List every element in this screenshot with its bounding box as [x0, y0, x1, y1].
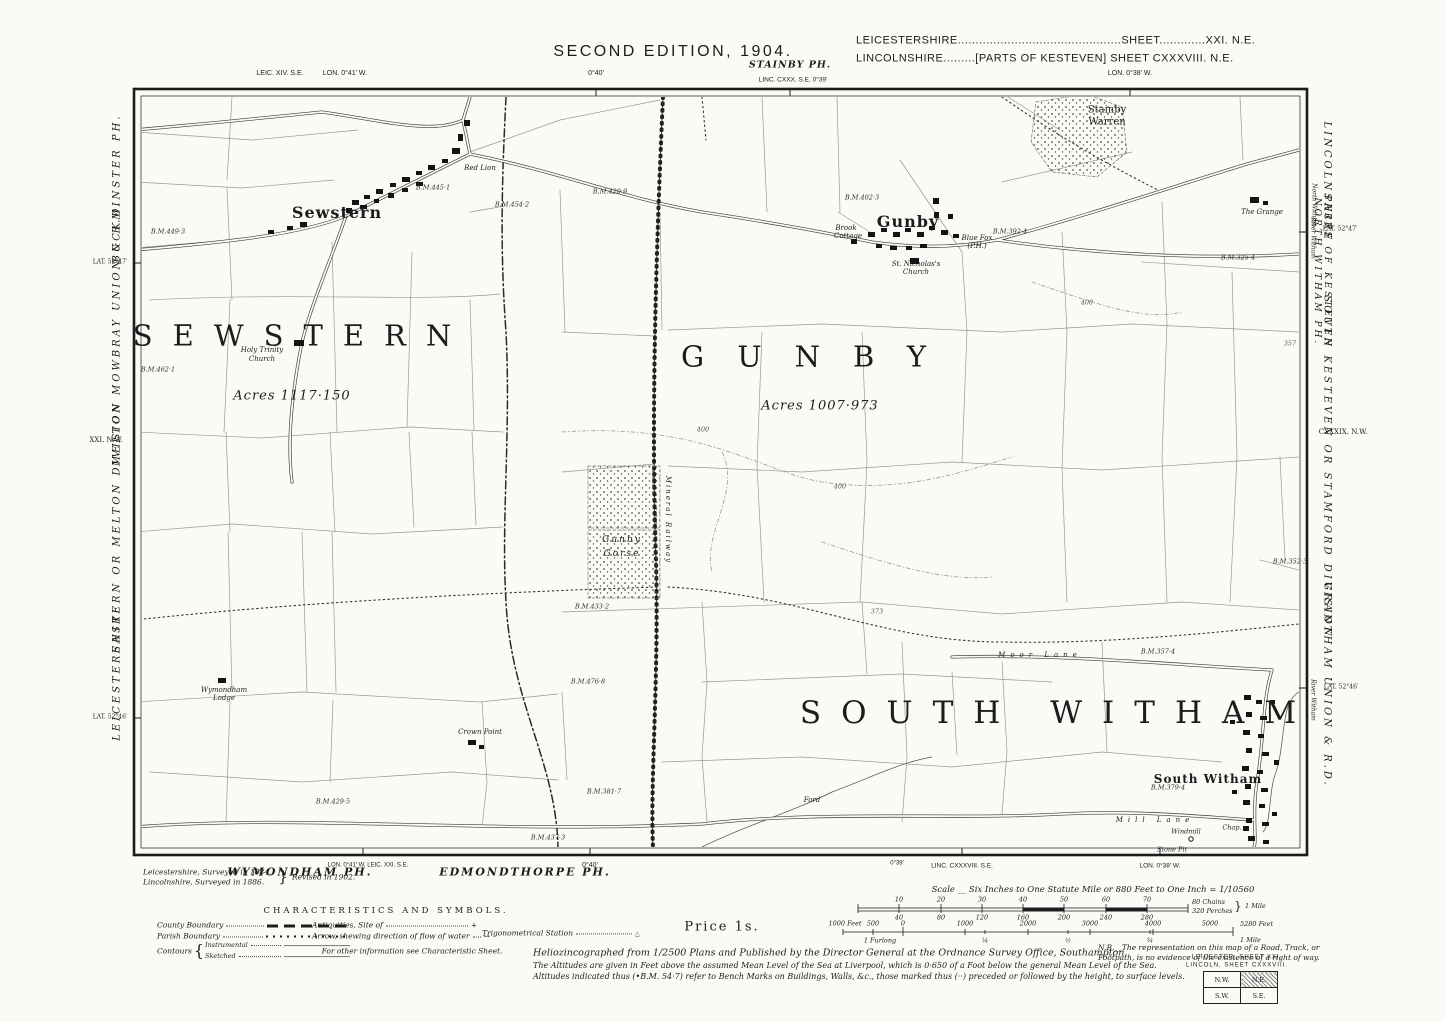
label-ford: Ford [804, 796, 821, 804]
parish-name-sewstern: SEWSTERN [133, 319, 471, 352]
legend-sketched-label: Sketched [205, 952, 236, 960]
county-boundary [502, 97, 558, 847]
gunby-gorse-wood-north [588, 466, 660, 528]
scale-feet-500: 500 [867, 920, 879, 927]
label-st-nicholas-2: Church [903, 268, 929, 276]
leader-dots [226, 925, 264, 927]
legend-contours-brace: { [194, 942, 204, 960]
margin-left-lat-46: LAT. 52°46′ [93, 715, 128, 722]
survey-note-revised: Revised in 1902. [292, 873, 355, 882]
scale-chains-20: 20 [937, 896, 945, 903]
scale-chains-10: 10 [895, 896, 903, 903]
label-mill-lane: Mill Lane [1116, 816, 1195, 824]
label-chapel: Chap. [1222, 824, 1241, 831]
leader-dots [576, 932, 632, 934]
adjoining-sheet-linc-se: LINC. CXXXVIII. S.E. [931, 862, 993, 869]
scale-feet-5280: 5280 Feet [1240, 921, 1273, 929]
legend-arrow-label: Arrow, shewing direction of flow of wate… [312, 932, 470, 941]
label-gunby-gorse-2: Gorse [604, 549, 641, 559]
leader-dots [473, 936, 481, 938]
benchmark-label: B.M.433·2 [575, 603, 609, 610]
scale-mile-brace: } [1234, 900, 1242, 914]
label-moor-lane: Moor Lane [998, 651, 1082, 659]
scale-perches-200: 200 [1058, 914, 1070, 921]
margin-right-sheet-nw: CXXXIX. N.W. [1319, 428, 1368, 436]
scale-chains-60: 60 [1102, 896, 1110, 903]
label-brook-cottage-1: Brook [835, 224, 856, 232]
index-quadrant-sw: S.W. [1204, 988, 1241, 1004]
label-blue-fox-2: (P.H.) [967, 242, 986, 250]
index-box-title-1: LEICESTER, SHEET XXI. [1192, 955, 1283, 962]
spot-height: 373 [871, 608, 883, 615]
adjoining-sheet-stainby: LINC. CXXX. S.E. 0°39′ [759, 76, 828, 83]
scale-chains-40: 40 [1019, 896, 1027, 903]
benchmark-label: B.M.352·3 [1273, 558, 1307, 565]
label-wymondham-lodge-2: Lodge [213, 694, 235, 702]
legend-parish-boundary-label: Parish Boundary [157, 932, 220, 941]
legend-trig-label: Trigonometrical Station [482, 928, 573, 937]
bottom-lon-38: LON. 0°38′ W. [1139, 862, 1180, 869]
benchmark-label: B.M.379·4 [1151, 784, 1185, 791]
acreage-sewstern: Acres 1117·150 [233, 390, 350, 405]
sheet-info-leicestershire: LEICESTERSHIRE..........................… [856, 34, 1255, 47]
scale-half: ½ [1065, 937, 1071, 944]
index-quadrant-ne: N.E. [1241, 972, 1278, 988]
legend-instrumental-label: Instrumental [205, 941, 248, 949]
benchmark-label: B.M.381·7 [587, 788, 621, 795]
leader-dots [239, 955, 281, 957]
buildings [218, 120, 1279, 854]
label-crown-point: Crown Point [458, 728, 502, 736]
contour-value: 400 [1081, 299, 1093, 306]
scale-mile-right: 1 Mile [1245, 903, 1266, 911]
label-brook-cottage-2: Cottage [834, 232, 862, 240]
legend-contours-label: Contours [157, 947, 192, 956]
benchmark-label: B.M.445·1 [416, 184, 450, 191]
altitude-note-2: Altitudes indicated thus (•B.M. 54·7) re… [533, 972, 1185, 982]
benchmark-label: B.M.357·4 [1141, 648, 1175, 655]
index-quadrant-table: N.W. N.E. S.W. S.E. [1203, 971, 1278, 1004]
scale-furlong: 1 Furlong [864, 937, 896, 944]
leader-dots [223, 936, 263, 938]
label-red-lion: Red Lion [464, 164, 496, 172]
benchmark-label: B.M.454·2 [495, 201, 529, 208]
publication-note: Heliozincographed from 1/2500 Plans and … [533, 947, 1127, 958]
scale-chains-right: 80 Chains [1192, 899, 1225, 907]
legend-title: CHARACTERISTICS AND SYMBOLS. [263, 907, 508, 917]
legend-antiquities: Antiquities, Site of+ [312, 921, 477, 930]
parish-name-gunby: GUNBY [681, 340, 959, 373]
scale-perches-120: 120 [976, 914, 988, 921]
survey-note-brace: } [278, 868, 288, 885]
contour-instrumental-symbol [284, 945, 350, 946]
legend-antiquities-label: Antiquities, Site of [312, 921, 383, 930]
label-holy-trinity-1: Holy Trinity [241, 346, 284, 354]
scale-feet-2000: 2000 [1020, 920, 1037, 927]
survey-note-leicestershire: Leicestershire, Surveyed in 1884. [143, 868, 271, 877]
buildings-sewstern [268, 120, 470, 346]
legend-trig-station: Trigonometrical Station△ [482, 928, 640, 937]
label-the-grange: The Grange [1241, 208, 1283, 216]
adjoining-sheet-wymondham: LON. 0°41′ W. LEIC. XXI. S.E. [328, 863, 409, 870]
benchmark-label: B.M.429·5 [316, 798, 350, 805]
scale-feet-5000: 5000 [1202, 920, 1219, 927]
contour-value: 400 [697, 426, 709, 433]
spot-height: 357 [1284, 340, 1296, 347]
legend-county-boundary-label: County Boundary [157, 921, 223, 930]
antiquities-cross-icon: + [471, 921, 477, 930]
acreage-gunby: Acres 1007·973 [761, 400, 878, 415]
os-map-sheet: SECOND EDITION, 1904. LEICESTERSHIRE....… [0, 0, 1445, 1022]
label-stainby-warren-2: Warren [1088, 116, 1125, 128]
label-stainby-warren-1: Stainby [1088, 104, 1127, 116]
scale-feet-0: 0 [901, 920, 905, 927]
price-label: Price 1s. [684, 921, 759, 936]
label-mineral-railway: Mineral Railway [664, 476, 672, 564]
survey-note-lincolnshire: Lincolnshire, Surveyed in 1886. [143, 878, 264, 887]
scale-quarter: ¼ [982, 937, 988, 944]
scale-perches-240: 240 [1100, 914, 1112, 921]
top-lon-38: LON. 0°38′ W. [1108, 70, 1152, 78]
scale-chains-30: 30 [978, 896, 986, 903]
margin-right-parts-line2: NORTH WITHAM PH. [1312, 195, 1322, 349]
edition-title: SECOND EDITION, 1904. [553, 43, 792, 61]
bottom-lon-39: 0°39′ [890, 861, 904, 868]
scale-feet-4000: 4000 [1145, 920, 1162, 927]
index-quadrant-se: S.E. [1241, 988, 1278, 1004]
adjoining-sheet-top-left: LEIC. XIV. S.E. [256, 70, 303, 78]
scale-feet-1000L: 1000 Feet [828, 920, 861, 927]
benchmark-label: B.M.476·8 [571, 678, 605, 685]
contour-value: 400 [834, 483, 846, 490]
scale-feet-3000: 3000 [1082, 920, 1099, 927]
scale-feet-1000: 1000 [957, 920, 974, 927]
label-gunby-gorse-1: Gunby [602, 535, 642, 545]
parish-name-south-witham: SOUTH WITHAM [800, 696, 1316, 732]
legend-more-info: For other information see Characteristic… [322, 948, 503, 957]
benchmark-label: B.M.462·1 [141, 366, 175, 373]
label-windmill: Windmill [1171, 828, 1200, 835]
windmill-symbol [1189, 837, 1193, 841]
legend-arrow: Arrow, shewing direction of flow of wate… [312, 932, 490, 941]
label-stone-pit: Stone Pit [1157, 846, 1187, 853]
benchmark-label: B.M.449·3 [151, 228, 185, 235]
index-quadrant-nw: N.W. [1204, 972, 1241, 988]
adjoining-parish-stainby: STAINBY PH. [749, 61, 831, 72]
adjoining-lon-top-left: LON. 0°41′ W. [323, 70, 367, 78]
label-st-nicholas-1: St. Nicholas's [892, 260, 941, 268]
trig-station-icon: △ [635, 930, 640, 937]
scale-chains-70: 70 [1143, 896, 1151, 903]
benchmark-label: B.M.325·4 [1221, 254, 1255, 261]
village-label-gunby: Gunby [877, 213, 939, 231]
benchmark-label: B.M.420·9 [593, 188, 627, 195]
index-box-title-2: LINCOLN, SHEET CXXXVIII. [1186, 963, 1288, 970]
scale-perches-80: 80 [937, 914, 945, 921]
margin-right-lat-46: LAT. 52°46′ [1324, 685, 1359, 692]
benchmark-label: B.M.437·3 [531, 834, 565, 841]
scale-perches-right: 320 Perches [1192, 908, 1233, 916]
label-wymondham-lodge-1: Wymondham [201, 686, 247, 694]
top-lon-40: 0°40′ [588, 70, 604, 78]
benchmark-label: B.M.402·3 [845, 194, 879, 201]
buildings-outlying [218, 197, 1268, 841]
altitude-note-1: The Altitudes are given in Feet above th… [533, 961, 1157, 971]
scale-chains-50: 50 [1060, 896, 1068, 903]
sheet-info-lincolnshire: LINCOLNSHIRE.........[PARTS OF KESTEVEN]… [856, 52, 1234, 65]
leader-dots [251, 944, 281, 946]
benchmark-label: B.M.392·4 [993, 228, 1027, 235]
label-blue-fox-1: Blue Fox [962, 234, 993, 242]
bottom-lon-40: 0°40′ [582, 862, 598, 870]
label-holy-trinity-2: Church [249, 355, 275, 363]
village-label-sewstern: Sewstern [292, 204, 382, 222]
leader-dots [386, 925, 468, 927]
